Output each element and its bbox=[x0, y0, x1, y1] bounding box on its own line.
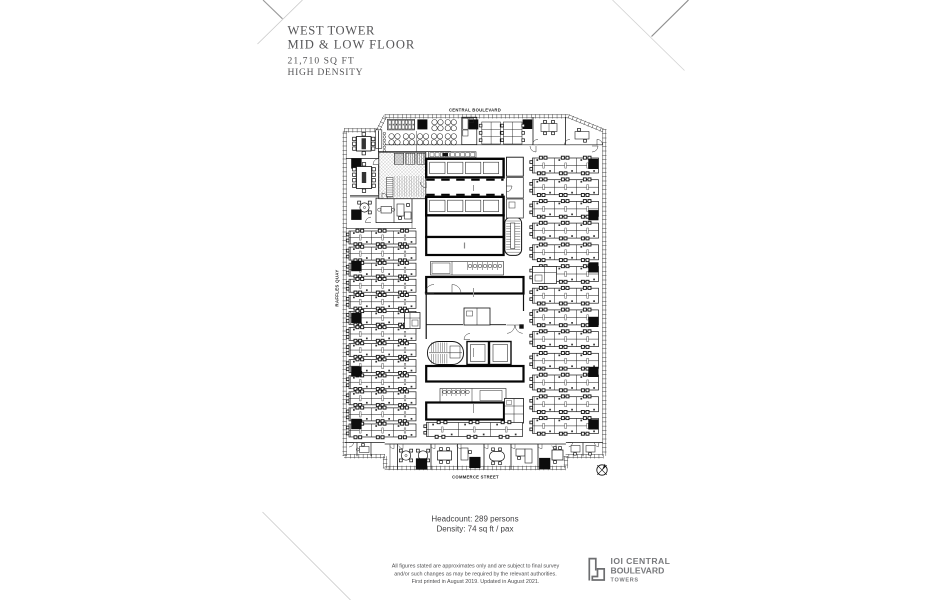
svg-text:Headcount: 289 persons: Headcount: 289 persons bbox=[431, 515, 518, 524]
svg-text:TOWERS: TOWERS bbox=[611, 578, 639, 584]
svg-text:BOULEVARD: BOULEVARD bbox=[611, 566, 665, 576]
svg-text:MID & LOW FLOOR: MID & LOW FLOOR bbox=[288, 38, 416, 52]
svg-text:RAFFLES QUAY: RAFFLES QUAY bbox=[335, 269, 340, 306]
svg-text:COMMERCE STREET: COMMERCE STREET bbox=[452, 474, 499, 479]
svg-text:WEST TOWER: WEST TOWER bbox=[288, 24, 376, 38]
svg-text:CENTRAL BOULEVARD: CENTRAL BOULEVARD bbox=[449, 108, 501, 113]
svg-text:21,710 SQ FT: 21,710 SQ FT bbox=[288, 56, 355, 67]
svg-text:Density: 74 sq ft / pax: Density: 74 sq ft / pax bbox=[437, 525, 514, 534]
svg-text:HIGH DENSITY: HIGH DENSITY bbox=[288, 67, 364, 78]
svg-text:IOI CENTRAL: IOI CENTRAL bbox=[611, 556, 671, 566]
svg-text:and/or such changes as may be: and/or such changes as may be required b… bbox=[394, 571, 556, 577]
svg-text:First printed in August 2019.: First printed in August 2019. Updated in… bbox=[412, 579, 540, 585]
svg-text:All figures stated are approxi: All figures stated are approximates only… bbox=[392, 564, 560, 570]
